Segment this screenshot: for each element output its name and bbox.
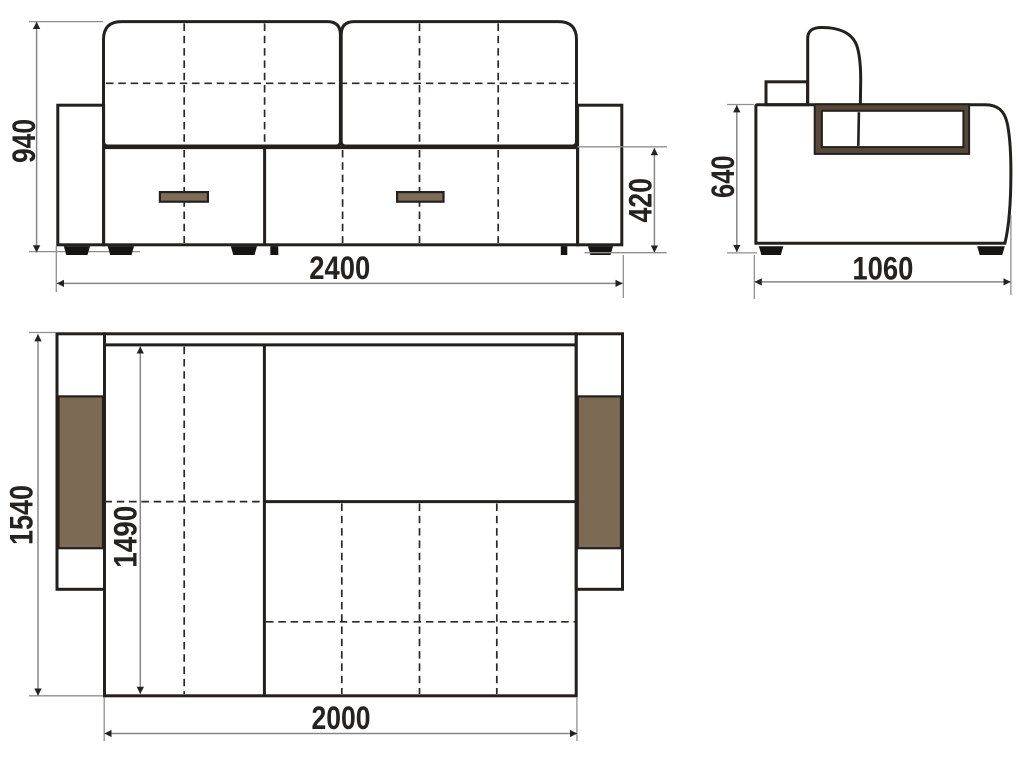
svg-text:1540: 1540 bbox=[4, 485, 40, 545]
svg-text:940: 940 bbox=[6, 119, 42, 163]
svg-text:1490: 1490 bbox=[107, 506, 143, 568]
svg-text:420: 420 bbox=[623, 178, 659, 223]
svg-text:640: 640 bbox=[705, 155, 741, 198]
svg-text:2000: 2000 bbox=[312, 700, 371, 736]
svg-text:1060: 1060 bbox=[852, 250, 913, 286]
svg-text:2400: 2400 bbox=[309, 250, 370, 286]
